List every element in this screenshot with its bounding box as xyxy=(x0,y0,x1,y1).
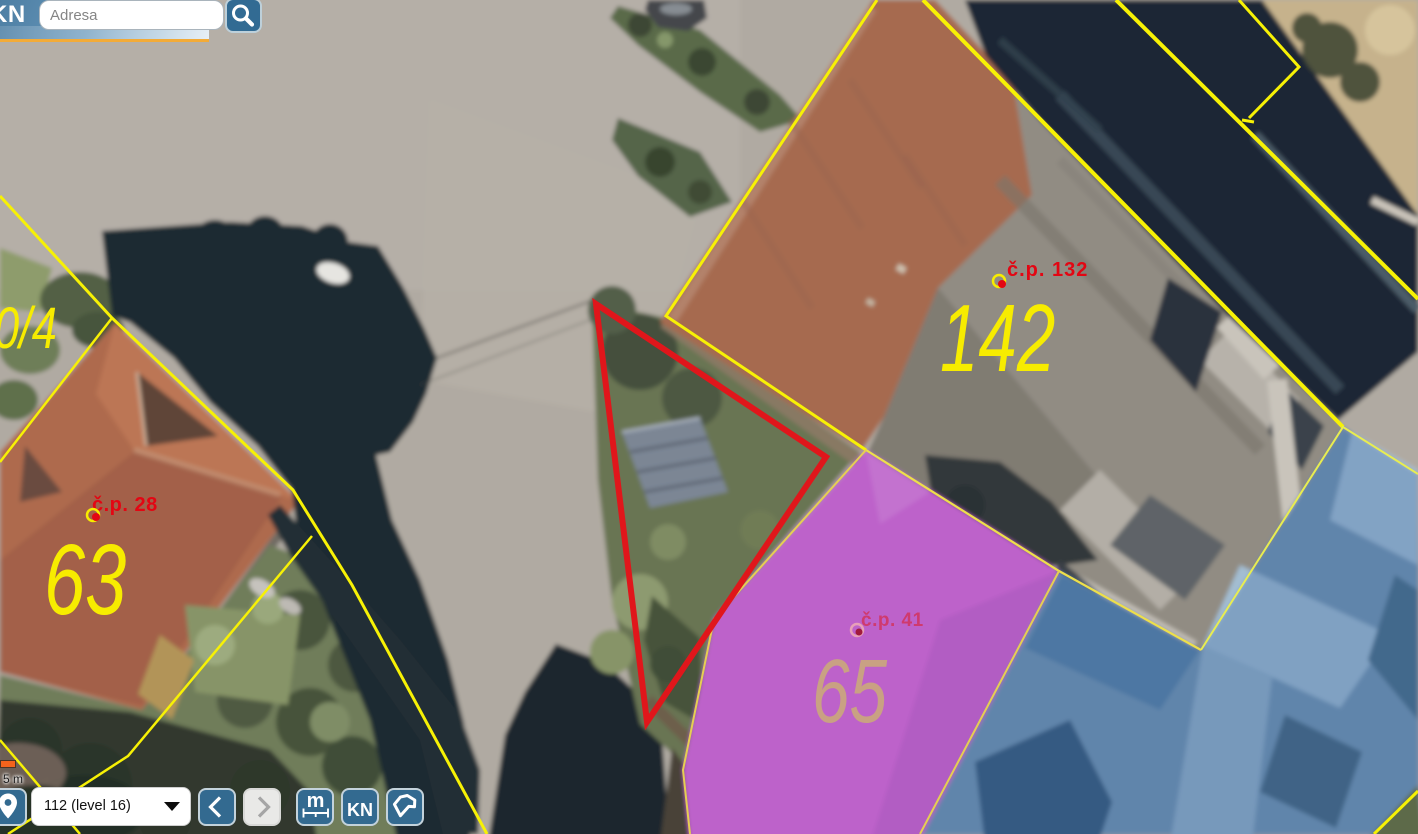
svg-text:m: m xyxy=(307,790,325,812)
svg-text:č.p. 28: č.p. 28 xyxy=(92,494,158,516)
svg-text:142: 142 xyxy=(940,284,1055,392)
svg-text:63: 63 xyxy=(44,523,126,636)
svg-text:0/4: 0/4 xyxy=(0,297,57,362)
svg-text:65: 65 xyxy=(812,641,888,742)
svg-text:č.p. 41: č.p. 41 xyxy=(861,610,924,631)
svg-text:č.p. 132: č.p. 132 xyxy=(1007,259,1088,281)
